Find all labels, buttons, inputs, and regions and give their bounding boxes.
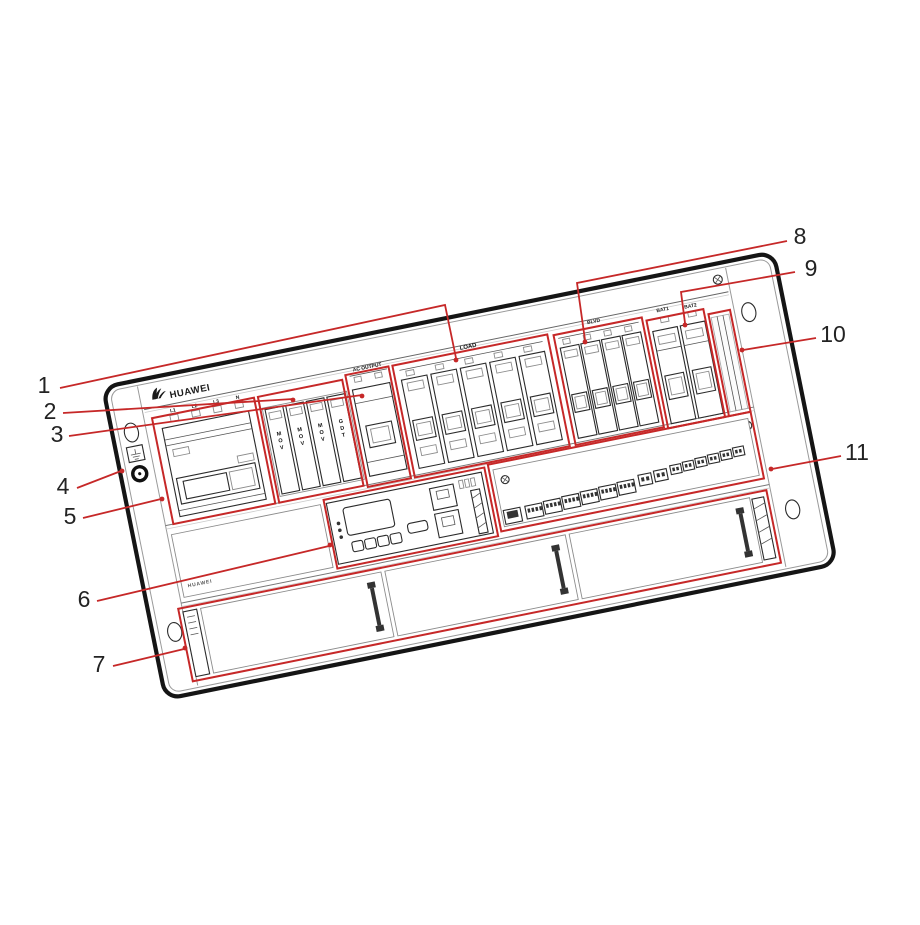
breaker-toggle xyxy=(534,398,550,413)
breaker-toggle xyxy=(616,387,628,401)
ethernet-port xyxy=(429,484,457,510)
callout-number-10: 10 xyxy=(820,321,846,347)
terminal-block xyxy=(598,484,617,500)
ground-symbol xyxy=(126,445,145,463)
ethernet-port xyxy=(435,510,463,538)
control-button xyxy=(390,532,403,544)
breaker-toggle xyxy=(595,391,607,405)
breaker-toggle xyxy=(416,421,432,436)
callout-number-4: 4 xyxy=(57,473,70,499)
terminal-block xyxy=(638,473,653,486)
terminal-block xyxy=(695,457,708,468)
callout-number-5: 5 xyxy=(64,503,77,529)
rj45-port xyxy=(503,507,522,524)
terminal-block xyxy=(732,446,745,457)
power-system-diagram: HUAWEI L1 L2 L3 N xyxy=(0,0,920,920)
terminal-block xyxy=(562,493,581,509)
callout-number-11: 11 xyxy=(845,439,869,465)
diagram-canvas: HUAWEI L1 L2 L3 N xyxy=(0,0,920,920)
terminal-block xyxy=(720,449,733,460)
control-button xyxy=(364,537,377,549)
breaker-toggle xyxy=(696,371,712,389)
terminal-block xyxy=(525,503,544,519)
breaker-toggle xyxy=(475,409,491,424)
grounding-button xyxy=(131,465,147,481)
terminal-block xyxy=(543,498,562,514)
terminal-block xyxy=(682,460,695,471)
callout-number-7: 7 xyxy=(93,651,106,677)
callout-number-3: 3 xyxy=(51,421,64,447)
callout-line-4 xyxy=(77,471,121,488)
callout-number-6: 6 xyxy=(78,586,91,612)
terminal-block xyxy=(670,464,683,475)
control-button xyxy=(377,535,390,547)
callout-number-9: 9 xyxy=(805,255,818,281)
breaker-toggle xyxy=(371,426,391,443)
breaker-toggle xyxy=(446,415,462,430)
terminal-block xyxy=(617,479,636,495)
callout-number-1: 1 xyxy=(38,372,51,398)
breaker-toggle xyxy=(575,395,587,409)
breaker-toggle xyxy=(636,383,648,397)
callout-number-8: 8 xyxy=(794,223,807,249)
equipment-panel: HUAWEI L1 L2 L3 N xyxy=(103,252,836,699)
terminal-block xyxy=(653,469,668,482)
terminal-block xyxy=(580,489,599,505)
terminal-block xyxy=(707,453,720,464)
breaker-toggle xyxy=(669,377,685,395)
control-button xyxy=(351,540,364,552)
breaker-toggle xyxy=(505,404,521,419)
